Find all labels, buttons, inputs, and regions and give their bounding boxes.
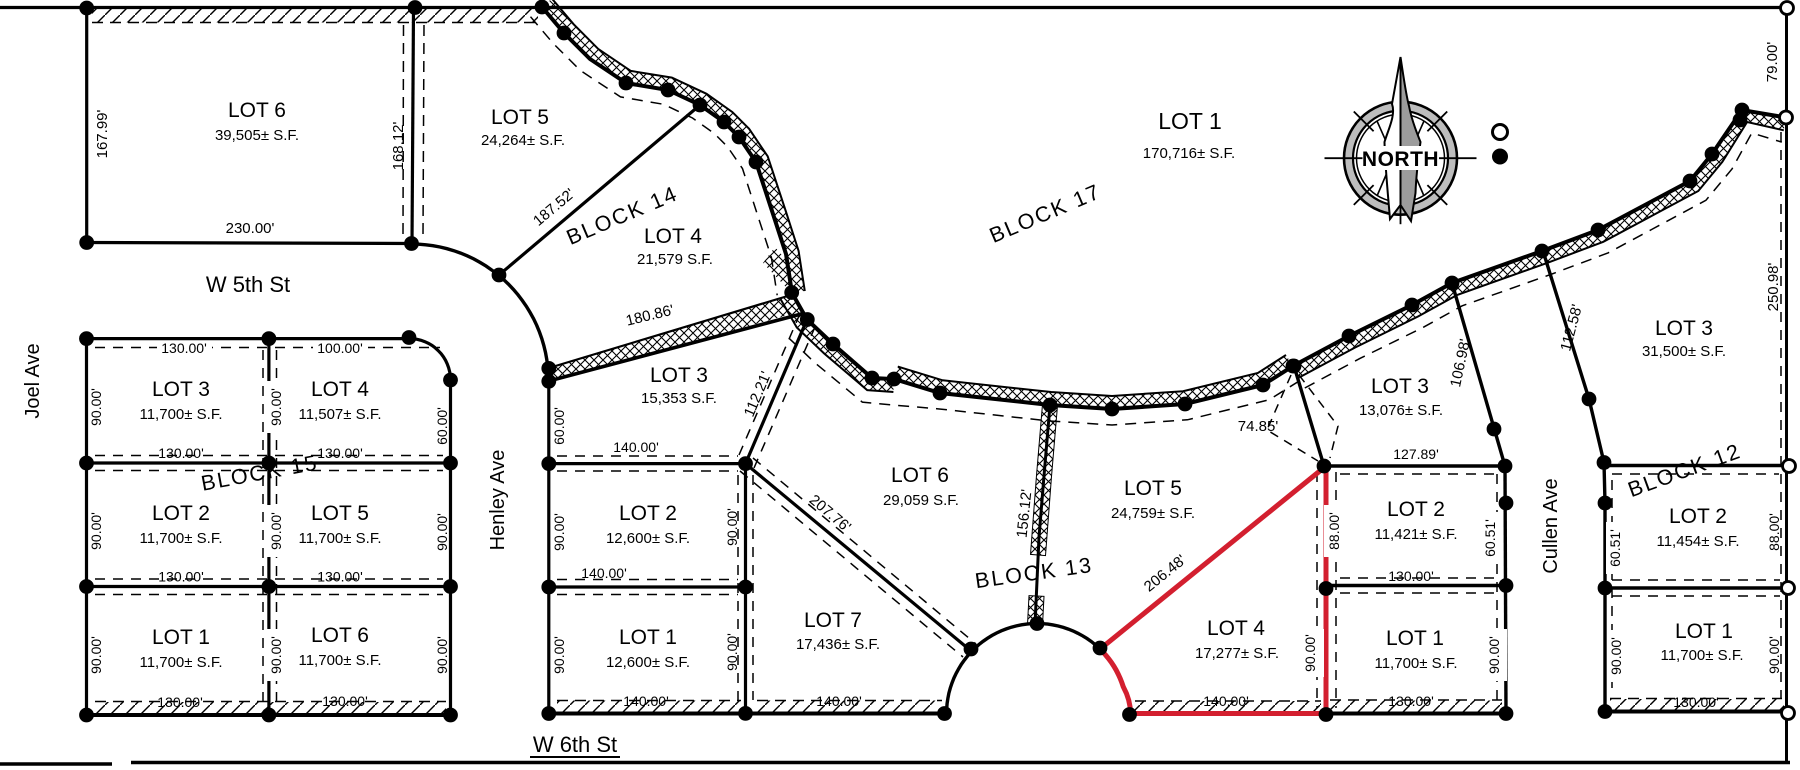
svg-text:130.00': 130.00': [1673, 694, 1719, 710]
svg-text:21,579 S.F.: 21,579 S.F.: [637, 251, 713, 268]
svg-text:LOT 2: LOT 2: [1669, 505, 1727, 528]
svg-text:11,421± S.F.: 11,421± S.F.: [1374, 526, 1457, 543]
svg-text:90.00': 90.00': [434, 636, 450, 674]
svg-text:LOT 1: LOT 1: [1386, 627, 1444, 650]
svg-text:140.00': 140.00': [816, 693, 862, 709]
svg-text:Cullen Ave: Cullen Ave: [1540, 478, 1562, 573]
svg-text:90.00': 90.00': [434, 513, 450, 551]
svg-text:140.00': 140.00': [613, 439, 659, 455]
svg-text:LOT 3: LOT 3: [1371, 375, 1429, 398]
svg-text:130.00': 130.00': [317, 569, 363, 585]
svg-text:130.00': 130.00': [158, 445, 204, 461]
svg-text:29,059 S.F.: 29,059 S.F.: [883, 492, 959, 509]
svg-text:Henley Ave: Henley Ave: [487, 450, 509, 551]
svg-text:130.00': 130.00': [1388, 568, 1434, 584]
svg-text:W 5th St: W 5th St: [206, 272, 290, 297]
svg-text:140.00': 140.00': [623, 693, 669, 709]
svg-text:130.00': 130.00': [322, 693, 368, 709]
svg-text:90.00': 90.00': [88, 388, 104, 426]
svg-text:250.98': 250.98': [1765, 262, 1782, 311]
svg-text:LOT 5: LOT 5: [491, 106, 549, 129]
svg-text:167.99': 167.99': [94, 109, 111, 158]
svg-text:90.00': 90.00': [1766, 636, 1782, 674]
svg-text:60.00': 60.00': [434, 407, 450, 445]
svg-text:11,700± S.F.: 11,700± S.F.: [298, 652, 381, 669]
svg-text:13,076± S.F.: 13,076± S.F.: [1359, 402, 1443, 419]
svg-text:130.00': 130.00': [158, 569, 204, 585]
svg-text:LOT 3: LOT 3: [152, 378, 210, 401]
svg-text:17,436± S.F.: 17,436± S.F.: [796, 636, 880, 653]
svg-text:LOT 2: LOT 2: [152, 502, 210, 525]
svg-text:140.00': 140.00': [581, 565, 627, 581]
svg-text:LOT 1: LOT 1: [619, 626, 677, 649]
svg-text:60.51': 60.51': [1607, 529, 1623, 567]
svg-text:170,716± S.F.: 170,716± S.F.: [1143, 145, 1235, 162]
svg-text:88.00': 88.00': [1326, 512, 1342, 550]
svg-text:LOT 5: LOT 5: [1124, 477, 1182, 500]
svg-text:130.00': 130.00': [317, 445, 363, 461]
svg-text:11,700± S.F.: 11,700± S.F.: [139, 530, 222, 547]
svg-text:90.00': 90.00': [1608, 637, 1624, 675]
svg-text:90.00': 90.00': [88, 512, 104, 550]
svg-text:W 6th St: W 6th St: [533, 732, 617, 757]
svg-text:11,700± S.F.: 11,700± S.F.: [139, 654, 222, 671]
svg-text:90.00': 90.00': [88, 636, 104, 674]
svg-text:90.00': 90.00': [268, 388, 284, 426]
svg-text:24,759± S.F.: 24,759± S.F.: [1111, 505, 1195, 522]
svg-text:11,700± S.F.: 11,700± S.F.: [1660, 647, 1743, 664]
svg-text:90.00': 90.00': [551, 636, 567, 674]
svg-text:LOT 2: LOT 2: [1387, 498, 1445, 521]
svg-text:11,454± S.F.: 11,454± S.F.: [1656, 533, 1739, 550]
svg-text:90.00': 90.00': [724, 633, 740, 671]
svg-text:15,353 S.F.: 15,353 S.F.: [641, 390, 717, 407]
svg-text:140.00': 140.00': [1203, 693, 1249, 709]
svg-text:LOT 2: LOT 2: [619, 502, 677, 525]
svg-text:LOT 3: LOT 3: [1655, 317, 1713, 340]
svg-text:90.00': 90.00': [551, 513, 567, 551]
svg-text:39,505± S.F.: 39,505± S.F.: [215, 127, 299, 144]
svg-text:130.00': 130.00': [1388, 693, 1434, 709]
svg-text:17,277± S.F.: 17,277± S.F.: [1195, 645, 1279, 662]
svg-text:LOT 1: LOT 1: [1675, 620, 1733, 643]
svg-text:12,600± S.F.: 12,600± S.F.: [606, 530, 690, 547]
svg-text:LOT 3: LOT 3: [650, 364, 708, 387]
svg-text:60.00': 60.00': [551, 407, 567, 445]
svg-text:LOT 6: LOT 6: [891, 464, 949, 487]
svg-text:130.00': 130.00': [161, 340, 207, 356]
svg-text:NORTH: NORTH: [1362, 148, 1439, 171]
svg-text:60.51': 60.51': [1482, 519, 1498, 557]
svg-text:11,700± S.F.: 11,700± S.F.: [1374, 655, 1457, 672]
svg-text:LOT 7: LOT 7: [804, 609, 862, 632]
svg-text:168.12': 168.12': [390, 121, 407, 170]
svg-text:90.00': 90.00': [1302, 634, 1318, 672]
svg-text:LOT 6: LOT 6: [228, 99, 286, 122]
svg-text:90.00': 90.00': [1486, 636, 1502, 674]
svg-text:24,264± S.F.: 24,264± S.F.: [481, 132, 565, 149]
svg-text:11,700± S.F.: 11,700± S.F.: [298, 530, 381, 547]
svg-text:LOT 6: LOT 6: [311, 624, 369, 647]
svg-text:12,600± S.F.: 12,600± S.F.: [606, 654, 690, 671]
svg-text:100.00': 100.00': [317, 340, 363, 356]
svg-text:74.85': 74.85': [1238, 418, 1279, 435]
svg-text:LOT 4: LOT 4: [311, 378, 369, 401]
svg-text:LOT 1: LOT 1: [152, 626, 210, 649]
svg-text:130.00': 130.00': [157, 694, 203, 710]
svg-text:90.00': 90.00': [724, 508, 740, 546]
svg-text:79.00': 79.00': [1764, 42, 1781, 83]
svg-text:LOT 5: LOT 5: [311, 502, 369, 525]
svg-text:127.89': 127.89': [1393, 446, 1439, 462]
svg-text:31,500± S.F.: 31,500± S.F.: [1642, 343, 1726, 360]
svg-text:LOT 4: LOT 4: [644, 225, 702, 248]
svg-text:11,507± S.F.: 11,507± S.F.: [298, 406, 381, 423]
svg-text:Joel Ave: Joel Ave: [22, 343, 44, 418]
svg-text:90.00': 90.00': [268, 512, 284, 550]
svg-text:LOT 1: LOT 1: [1158, 108, 1222, 134]
svg-text:LOT 4: LOT 4: [1207, 617, 1265, 640]
svg-text:88.00': 88.00': [1766, 513, 1782, 551]
svg-text:11,700± S.F.: 11,700± S.F.: [139, 406, 222, 423]
svg-text:230.00': 230.00': [226, 220, 275, 237]
svg-text:90.00': 90.00': [268, 636, 284, 674]
